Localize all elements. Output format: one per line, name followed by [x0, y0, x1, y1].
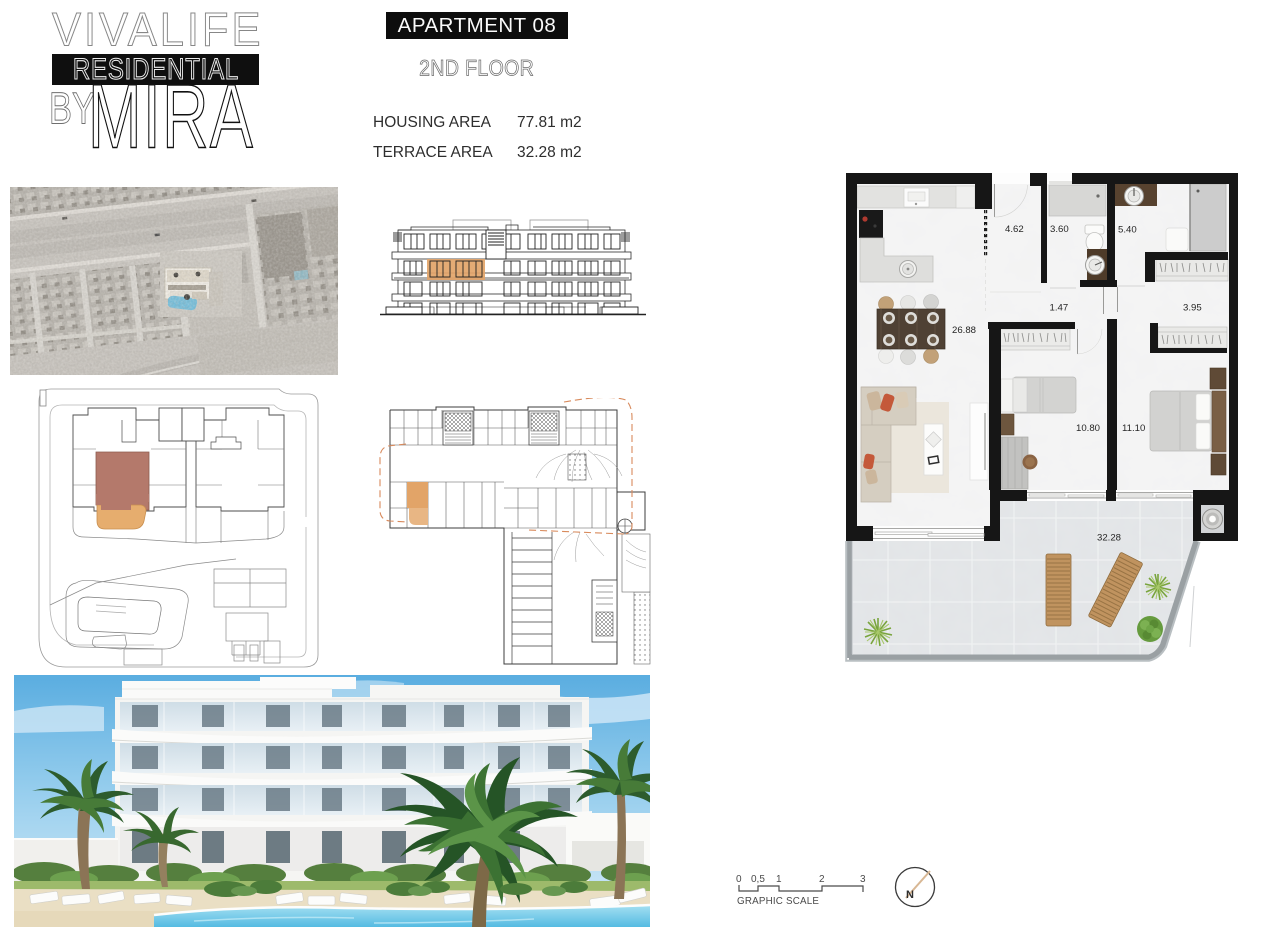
svg-text:1: 1 [776, 874, 782, 885]
svg-text:0: 0 [736, 874, 742, 885]
svg-text:1.47: 1.47 [1050, 303, 1069, 314]
svg-text:26.88: 26.88 [952, 325, 976, 336]
svg-text:3.60: 3.60 [1050, 224, 1069, 235]
svg-text:5.40: 5.40 [1118, 225, 1137, 236]
svg-text:N: N [906, 889, 914, 901]
svg-text:32.28: 32.28 [1097, 533, 1121, 544]
svg-text:3: 3 [860, 874, 866, 885]
svg-text:10.80: 10.80 [1076, 423, 1100, 434]
svg-text:0,5: 0,5 [751, 874, 765, 885]
svg-text:2: 2 [819, 874, 825, 885]
svg-text:11.10: 11.10 [1122, 423, 1145, 434]
svg-text:GRAPHIC SCALE: GRAPHIC SCALE [737, 896, 819, 907]
svg-text:3.95: 3.95 [1183, 303, 1202, 314]
svg-text:4.62: 4.62 [1005, 224, 1024, 235]
